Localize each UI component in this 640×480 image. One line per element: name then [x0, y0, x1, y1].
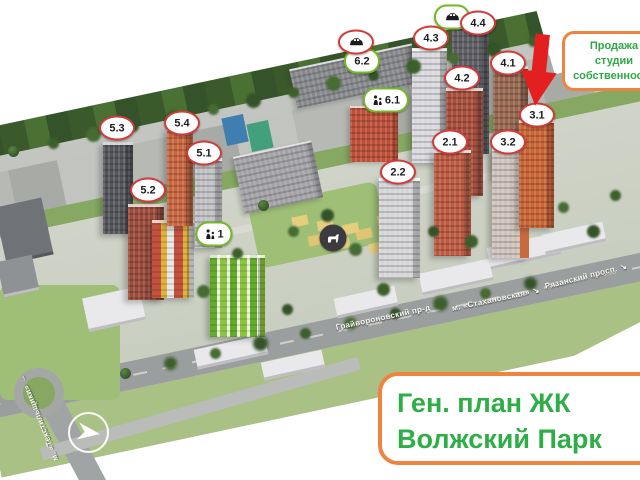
marker-4-1[interactable]: 4.1: [490, 51, 526, 76]
car-icon: [349, 38, 364, 47]
marker-6-1[interactable]: 6.1: [363, 88, 409, 113]
marker-label: 5.2: [140, 184, 155, 196]
marker-label: 4.2: [454, 72, 469, 84]
car-icon: [445, 13, 460, 22]
marker-label: 6.1: [385, 94, 400, 106]
marker-4-3[interactable]: 4.3: [413, 26, 449, 51]
parking-badge-62[interactable]: [338, 30, 374, 55]
marker-2-2[interactable]: 2.2: [380, 160, 416, 185]
marker-label: 3.1: [529, 109, 544, 121]
marker-label: 2.2: [390, 166, 405, 178]
dog-walking-icon: [326, 233, 340, 244]
tree-row-bottom: [120, 368, 131, 379]
building-5-4: [167, 128, 193, 226]
genplan-image: Грайвороновский пр-дм. «Стахановская»↘Ря…: [0, 0, 640, 480]
marker-label: 1: [217, 228, 223, 240]
education-icon: [372, 95, 383, 106]
marker-5-1[interactable]: 5.1: [186, 141, 222, 166]
plan-title-line1: Ген. план ЖК: [397, 385, 640, 421]
building-colorful: [152, 220, 194, 298]
building-1: [210, 255, 265, 337]
marker-1[interactable]: 1: [195, 222, 232, 247]
marker-label: 4.4: [470, 17, 485, 29]
education-icon: [204, 229, 215, 240]
marker-5-3[interactable]: 5.3: [99, 116, 135, 141]
marker-5-2[interactable]: 5.2: [130, 178, 166, 203]
sale-callout: Продажа студии собственность: [562, 31, 640, 91]
callout-line: Продажа: [565, 39, 640, 54]
marker-2-1[interactable]: 2.1: [432, 130, 468, 155]
marker-label: 5.4: [174, 117, 189, 129]
marker-4-4[interactable]: 4.4: [460, 11, 496, 36]
marker-5-4[interactable]: 5.4: [164, 111, 200, 136]
marker-3-1[interactable]: 3.1: [519, 103, 555, 128]
plan-title-line2: Волжский Парк: [397, 421, 640, 457]
plan-title: Ген. план ЖК Волжский Парк: [378, 372, 640, 465]
marker-4-2[interactable]: 4.2: [444, 66, 480, 91]
marker-label: 5.1: [196, 147, 211, 159]
callout-line: собственность: [565, 69, 640, 84]
marker-label: 6.2: [354, 55, 369, 67]
callout-line: студии: [565, 54, 640, 69]
building-2-2: [379, 178, 420, 278]
compass-icon: [68, 412, 109, 453]
dog-walking-badge[interactable]: [320, 225, 347, 252]
marker-label: 2.1: [442, 136, 457, 148]
building-6-1: [350, 106, 398, 162]
marker-label: 3.2: [500, 136, 515, 148]
marker-3-2[interactable]: 3.2: [490, 130, 526, 155]
compass-needle: [76, 423, 100, 443]
tree-scatter: [258, 200, 269, 211]
marker-label: 4.1: [500, 57, 515, 69]
tree-row-top: [8, 146, 19, 157]
marker-label: 4.3: [423, 32, 438, 44]
building-2-1: [434, 150, 471, 256]
marker-label: 5.3: [109, 122, 124, 134]
